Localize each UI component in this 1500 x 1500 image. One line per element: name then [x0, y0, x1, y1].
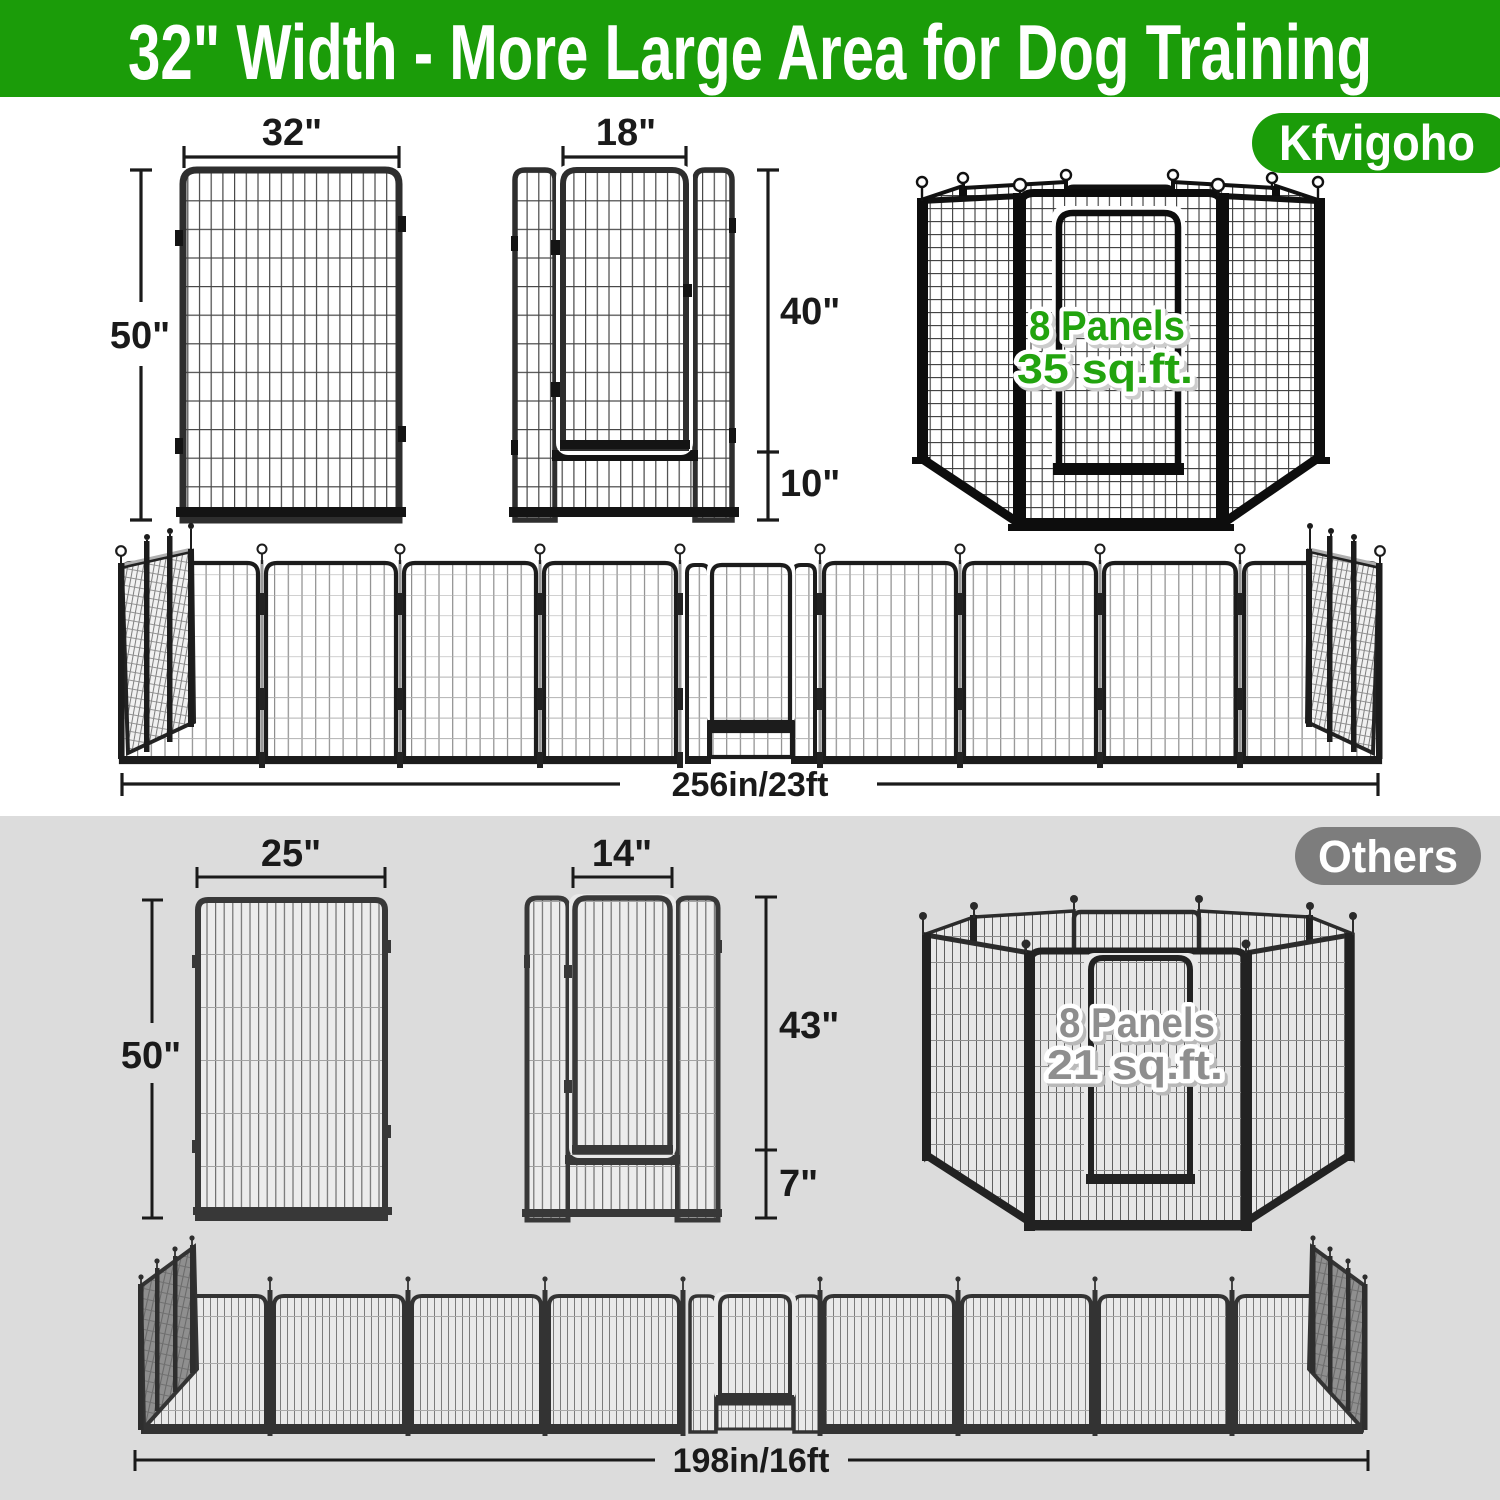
svg-text:50": 50"	[110, 315, 170, 357]
svg-text:7": 7"	[779, 1163, 818, 1205]
svg-text:14": 14"	[592, 833, 652, 875]
svg-text:35 sq.ft.: 35 sq.ft.	[1017, 345, 1193, 392]
svg-text:198in/16ft: 198in/16ft	[673, 1442, 830, 1480]
svg-text:21 sq.ft.: 21 sq.ft.	[1047, 1041, 1223, 1088]
svg-text:32" Width - More Large Area fo: 32" Width - More Large Area for Dog Trai…	[128, 8, 1372, 96]
svg-text:Kfvigoho: Kfvigoho	[1279, 115, 1475, 171]
svg-text:50": 50"	[121, 1035, 181, 1077]
svg-text:10": 10"	[780, 463, 840, 505]
svg-text:43": 43"	[779, 1005, 839, 1047]
svg-text:40": 40"	[780, 291, 840, 333]
svg-text:256in/23ft: 256in/23ft	[672, 766, 829, 804]
svg-text:8 Panels: 8 Panels	[1029, 302, 1185, 349]
svg-text:18": 18"	[596, 112, 656, 154]
svg-text:25": 25"	[261, 833, 321, 875]
svg-text:8 Panels: 8 Panels	[1059, 999, 1215, 1046]
svg-text:Others: Others	[1318, 831, 1458, 882]
svg-text:32": 32"	[262, 112, 322, 154]
